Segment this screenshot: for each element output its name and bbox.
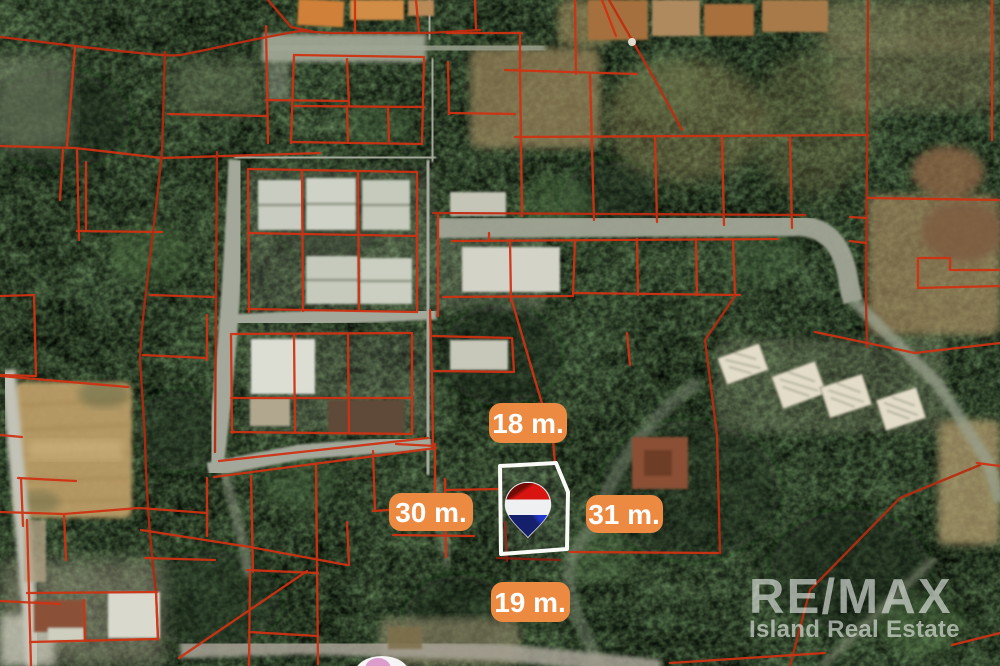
svg-text:Island Real Estate: Island Real Estate [749, 616, 960, 643]
svg-text:18 m.: 18 m. [492, 408, 564, 439]
svg-text:31 m.: 31 m. [588, 499, 660, 530]
svg-text:30 m.: 30 m. [395, 497, 467, 528]
svg-text:19 m.: 19 m. [494, 587, 566, 618]
